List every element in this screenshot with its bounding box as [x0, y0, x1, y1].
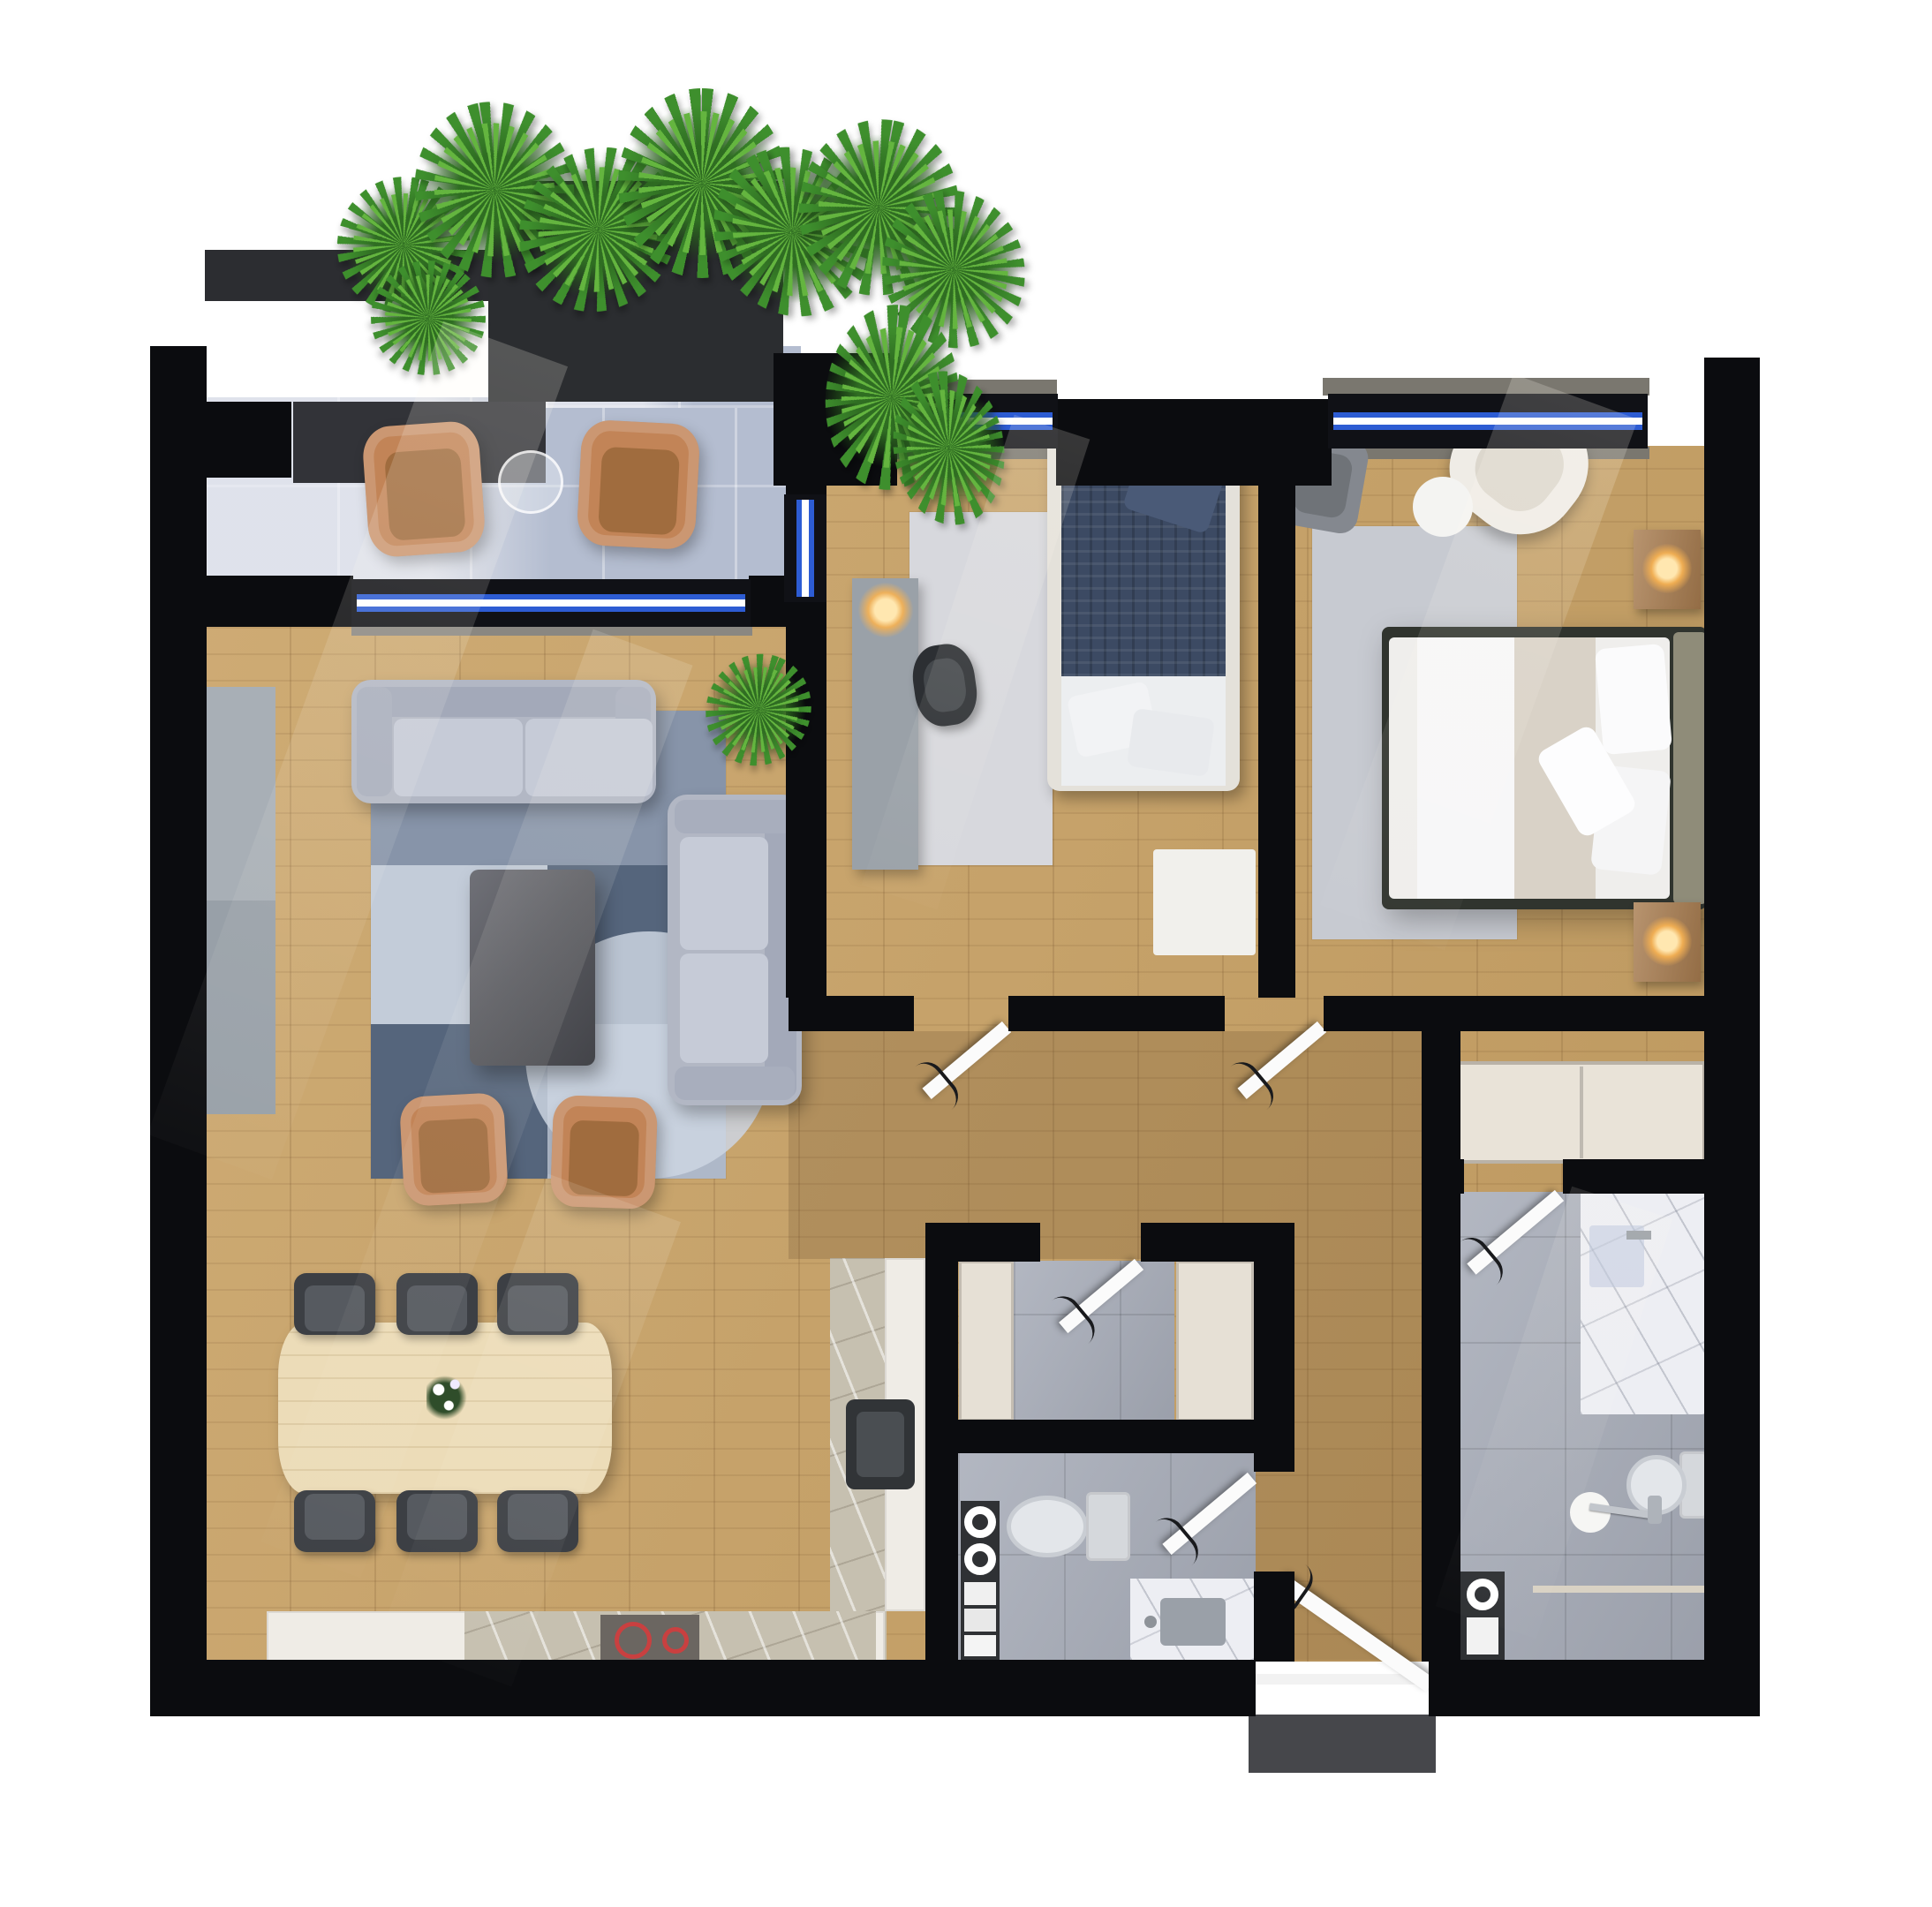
chair-seat: [508, 1285, 568, 1331]
toilet-tank: [1086, 1492, 1130, 1561]
office-chair-seat: [921, 656, 969, 714]
balcony-armchair: [361, 420, 487, 559]
wall-rightbath-top-b: [1563, 1159, 1706, 1194]
sink-basin: [857, 1412, 904, 1477]
bedroom-window-sill-outer: [1323, 378, 1649, 396]
linen-shelf: [964, 1582, 996, 1605]
wall-office-bedroom-divider: [1258, 446, 1295, 998]
wall-left-top-stub: [205, 402, 291, 478]
balcony-armchair: [576, 419, 700, 551]
cooktop-ring-small: [662, 1627, 689, 1654]
closet-seam: [1580, 1067, 1583, 1158]
nightstand-lamp: [1634, 530, 1701, 609]
washer-drum: [964, 1506, 996, 1538]
desk-wall-lamp-glow: [858, 583, 913, 637]
dining-chair: [497, 1273, 578, 1335]
wall-office-bottom-a: [789, 996, 914, 1031]
lamp-glow: [1642, 916, 1692, 966]
sofa-three-seat: [351, 680, 656, 803]
wall-office-bottom-b: [1008, 996, 1225, 1031]
wall-corridor-right: [1422, 1031, 1460, 1662]
wall-wc-top-b: [1141, 1223, 1256, 1262]
midbath-washer-dryer-stack: [961, 1501, 1000, 1660]
chair-seat: [508, 1494, 568, 1540]
washer-drum: [1467, 1579, 1498, 1610]
window-office-side: [784, 494, 826, 602]
office-side-unit: [1153, 849, 1256, 955]
bed-pillow: [1595, 644, 1672, 755]
living-armchair: [399, 1092, 509, 1207]
wall-bottom-left: [150, 1660, 1256, 1716]
kitchen-cooktop: [600, 1615, 699, 1666]
toilet-bowl: [1007, 1496, 1088, 1557]
corridor-shadow-upper: [789, 1031, 1423, 1259]
wall-wc-right-lower: [1254, 1572, 1294, 1662]
armchair-seat: [598, 447, 680, 535]
linen-shelf: [964, 1609, 996, 1632]
wall-right-outer: [1704, 358, 1760, 1662]
midbath-vanity: [1130, 1579, 1254, 1660]
vanity-faucet: [1144, 1616, 1157, 1628]
bed-sheet-band: [1417, 637, 1514, 899]
wall-left-outer: [150, 346, 207, 1662]
armchair-seat: [418, 1118, 490, 1194]
wall-under-balcony-left: [205, 576, 353, 627]
sideboard-top: [205, 687, 275, 901]
wc-cabinet-left: [959, 1261, 1014, 1421]
sofa-cushion: [680, 953, 768, 1063]
rightbath-stool: [1570, 1492, 1611, 1533]
flower-vase: [426, 1374, 467, 1427]
coffee-table: [470, 870, 595, 1066]
dining-chair: [396, 1490, 478, 1552]
wall-wc-midbath-divider: [958, 1420, 1256, 1453]
vanity-sink: [1160, 1598, 1226, 1646]
floor-plan: [0, 0, 1932, 1907]
sofa-arm-bottom: [675, 1067, 795, 1100]
chair-seat: [407, 1285, 467, 1331]
dining-chair: [294, 1273, 375, 1335]
wall-office-side-lower: [786, 600, 826, 998]
wall-rightbath-top-a: [1422, 1159, 1464, 1194]
bath-filler-handle: [1648, 1496, 1662, 1524]
midbath-toilet: [1007, 1490, 1130, 1563]
washer-drawer: [1467, 1617, 1498, 1654]
rightbath-shower: [1581, 1192, 1706, 1414]
chair-seat: [407, 1494, 467, 1540]
kitchen-sink: [846, 1399, 915, 1489]
lamp-glow: [1642, 544, 1692, 593]
sofa-back: [360, 687, 647, 717]
living-armchair: [550, 1095, 658, 1210]
hall-closet-builtin: [1457, 1061, 1706, 1164]
bedroom-round-table: [1413, 477, 1473, 537]
dining-chair: [497, 1490, 578, 1552]
cooktop-ring-large: [615, 1622, 652, 1659]
window-living-balcony: [351, 579, 751, 627]
floor-wc-tile: [1014, 1261, 1174, 1421]
sofa-cushion: [394, 719, 523, 796]
dining-chair: [396, 1273, 478, 1335]
wall-wc-top-a: [925, 1223, 1040, 1262]
chair-seat: [305, 1285, 365, 1331]
bed-double: [1382, 627, 1707, 909]
entry-doormat: [1249, 1715, 1436, 1773]
sofa-arm-left: [357, 687, 392, 796]
dining-chair: [294, 1490, 375, 1552]
wall-office-side-upper: [786, 446, 826, 497]
wall-kitchen-wc-divider: [925, 1223, 958, 1662]
dining-table: [278, 1323, 612, 1494]
wall-wc-right-upper: [1254, 1223, 1294, 1472]
armchair-seat: [568, 1120, 639, 1197]
shower-mixer: [1626, 1231, 1651, 1240]
nightstand-lamp: [1634, 902, 1701, 982]
window-bedroom-top: [1328, 394, 1648, 448]
bed-headboard: [1673, 632, 1707, 904]
armchair-seat: [384, 448, 466, 541]
linen-shelf: [964, 1635, 996, 1656]
chair-seat: [305, 1494, 365, 1540]
sofa-arm-top: [675, 800, 795, 833]
sofa-cushion: [525, 719, 653, 796]
rightbath-towel-rail: [1533, 1586, 1706, 1593]
wall-bottom-right: [1429, 1660, 1760, 1716]
sofa-cushion: [680, 837, 768, 950]
rightbath-washer: [1460, 1572, 1505, 1660]
balcony-glass-table: [498, 450, 563, 514]
daybed-pillow: [1127, 708, 1215, 777]
wc-cabinet-right: [1176, 1261, 1254, 1421]
living-sideboard: [205, 687, 275, 1114]
dryer-drum: [964, 1543, 996, 1575]
wall-bedroom-bottom: [1324, 996, 1706, 1031]
sofa-two-seat: [668, 795, 802, 1105]
